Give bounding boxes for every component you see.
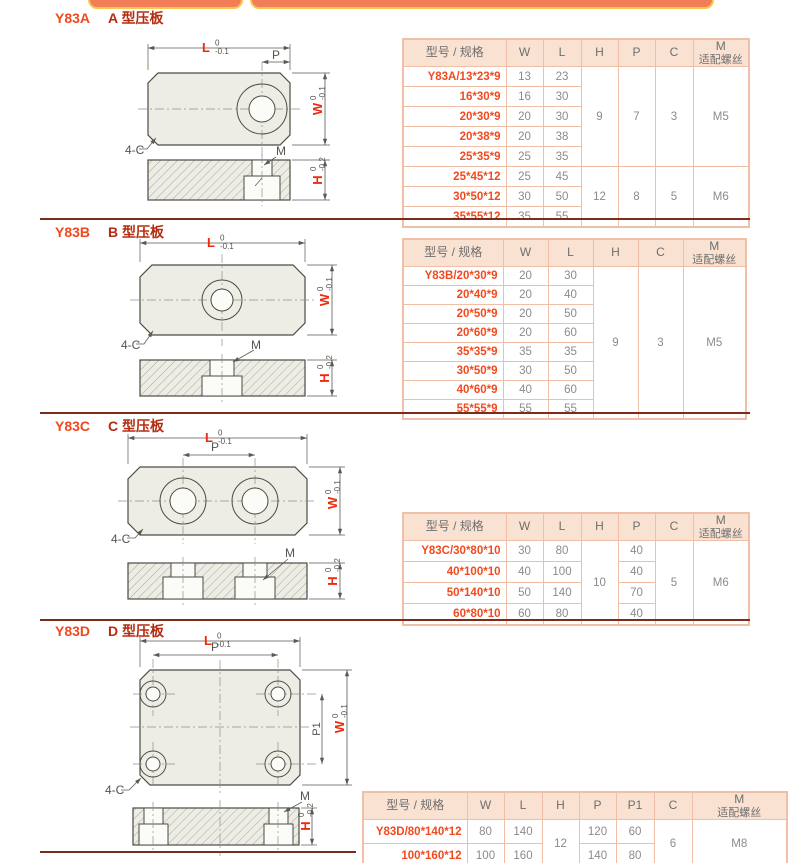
cell-M: M8 xyxy=(692,820,787,863)
cell-M: M6 xyxy=(693,541,749,626)
chamfer-label: 4-C xyxy=(111,532,131,546)
section-divider xyxy=(40,218,750,220)
tolerance-upper: 0 xyxy=(309,166,318,171)
tolerance-lower: -0.1 xyxy=(333,480,342,494)
col-header-P1: P1 xyxy=(616,792,654,820)
spec-table-y83a-grid: 型号 / 规格WLHPCM适配螺丝Y83A/13*23*91323973M516… xyxy=(402,38,750,228)
cell-model: 60*80*10 xyxy=(403,604,506,626)
dim-label-h: H xyxy=(298,821,313,830)
col-header-M: M适配螺丝 xyxy=(693,39,749,67)
cell-W: 30 xyxy=(506,541,543,562)
cell-L: 50 xyxy=(543,187,581,207)
cell-model: Y83D/80*140*12 xyxy=(363,820,467,844)
cell-model: 25*35*9 xyxy=(403,147,506,167)
tolerance-lower: -0.1 xyxy=(218,437,232,446)
top-tab-bar-right[interactable] xyxy=(250,0,714,9)
cell-P: 70 xyxy=(618,583,655,604)
cell-model: Y83B/20*30*9 xyxy=(403,267,503,286)
cell-L: 38 xyxy=(543,127,581,147)
drawing-y83b: L 0 -0.1 W 0 -0.1 4-C M H 0 -0.2 xyxy=(55,226,365,411)
col-header-P: P xyxy=(618,39,655,67)
tolerance-lower: -0.2 xyxy=(333,558,342,572)
cell-W: 20 xyxy=(503,267,548,286)
tolerance-upper: 0 xyxy=(324,489,333,494)
tolerance-lower: -0.1 xyxy=(217,640,231,649)
tolerance-lower: -0.2 xyxy=(306,803,315,817)
tolerance-lower: -0.1 xyxy=(318,86,327,100)
catalog-page: Y83AA 型压板 xyxy=(0,0,790,863)
cell-L: 140 xyxy=(504,820,542,844)
cell-L: 80 xyxy=(543,541,581,562)
dim-label-h: H xyxy=(317,373,332,382)
tolerance-lower: -0.1 xyxy=(215,47,229,56)
dim-label-h: H xyxy=(310,175,325,184)
cell-L: 60 xyxy=(548,324,593,343)
cell-W: 20 xyxy=(503,324,548,343)
cell-P: 7 xyxy=(618,67,655,167)
cell-W: 50 xyxy=(506,583,543,604)
cell-C: 3 xyxy=(638,267,683,420)
cell-W: 40 xyxy=(506,562,543,583)
top-view xyxy=(118,458,317,544)
col-header-W: W xyxy=(503,239,548,267)
dim-label-l: L xyxy=(202,40,210,55)
side-view xyxy=(140,350,337,402)
cell-W: 80 xyxy=(467,820,504,844)
cell-model: 20*40*9 xyxy=(403,286,503,305)
col-header-C: C xyxy=(655,39,693,67)
col-header-W: W xyxy=(506,513,543,541)
cell-H: 10 xyxy=(581,541,618,626)
cell-H: 9 xyxy=(593,267,638,420)
dim-label-p: P xyxy=(211,640,219,654)
cell-model: 16*30*9 xyxy=(403,87,506,107)
cell-model: 55*55*9 xyxy=(403,400,503,420)
dim-label-p: P xyxy=(211,440,219,454)
cell-W: 25 xyxy=(506,147,543,167)
side-section xyxy=(128,563,307,599)
cell-model: 35*35*9 xyxy=(403,343,503,362)
cell-model: 20*30*9 xyxy=(403,107,506,127)
cell-W: 16 xyxy=(506,87,543,107)
tolerance-upper: 0 xyxy=(316,286,325,291)
table-row: Y83A/13*23*91323973M5 xyxy=(403,67,749,87)
tolerance-lower: -0.2 xyxy=(318,157,327,171)
cell-model: Y83C/30*80*10 xyxy=(403,541,506,562)
dim-label-p1: P1 xyxy=(311,722,323,735)
section-title-y83a: Y83AA 型压板 xyxy=(55,8,164,28)
cell-L: 55 xyxy=(548,400,593,420)
cell-W: 20 xyxy=(503,286,548,305)
cell-L: 50 xyxy=(548,362,593,381)
through-hole xyxy=(249,96,275,122)
side-view xyxy=(128,557,345,605)
chamfer-label: 4-C xyxy=(125,143,145,157)
col-header-H: H xyxy=(581,39,618,67)
table-row: Y83B/20*30*9203093M5 xyxy=(403,267,746,286)
dim-label-m: M xyxy=(251,338,261,352)
spec-table-y83d: 型号 / 规格WLHPP1CM适配螺丝Y83D/80*140*128014012… xyxy=(362,791,788,863)
cell-L: 80 xyxy=(543,604,581,626)
cell-model: 100*160*12 xyxy=(363,844,467,863)
top-view xyxy=(130,659,317,795)
cell-W: 35 xyxy=(503,343,548,362)
cell-P: 120 xyxy=(579,820,616,844)
tolerance-upper: 0 xyxy=(316,364,325,369)
chamfer-label: 4-C xyxy=(121,338,141,352)
cell-P: 40 xyxy=(618,604,655,626)
cell-M: M5 xyxy=(693,67,749,167)
dim-label-m: M xyxy=(300,789,310,803)
col-header-L: L xyxy=(543,513,581,541)
section-type-label: A 型压板 xyxy=(108,10,163,26)
col-header-M: M适配螺丝 xyxy=(683,239,746,267)
col-header-W: W xyxy=(506,39,543,67)
cell-L: 160 xyxy=(504,844,542,863)
header-row: 型号 / 规格WLHPP1CM适配螺丝 xyxy=(363,792,787,820)
spec-table-y83b: 型号 / 规格WLHCM适配螺丝Y83B/20*30*9203093M520*4… xyxy=(402,238,747,420)
cell-L: 40 xyxy=(548,286,593,305)
top-view xyxy=(130,254,315,346)
col-header-M: M适配螺丝 xyxy=(692,792,787,820)
col-header-P: P xyxy=(618,513,655,541)
col-header-model: 型号 / 规格 xyxy=(403,239,503,267)
dim-label-w: W xyxy=(325,496,340,509)
tolerance-lower: -0.1 xyxy=(340,704,349,718)
cell-W: 30 xyxy=(503,362,548,381)
cell-L: 140 xyxy=(543,583,581,604)
through-hole xyxy=(242,488,268,514)
tolerance-lower: -0.1 xyxy=(325,277,334,291)
dim-label-w: W xyxy=(310,102,325,115)
cell-L: 30 xyxy=(543,87,581,107)
col-header-C: C xyxy=(654,792,692,820)
cell-model: 30*50*12 xyxy=(403,187,506,207)
drawing-y83d: L 0 -0.1 P P1 W 0 -0.1 4-C M H 0 -0.2 xyxy=(55,626,365,863)
cell-L: 50 xyxy=(548,305,593,324)
cell-L: 45 xyxy=(543,167,581,187)
cell-model: 30*50*9 xyxy=(403,362,503,381)
dim-label-w: W xyxy=(317,293,332,306)
col-header-model: 型号 / 规格 xyxy=(363,792,467,820)
cell-L: 35 xyxy=(543,147,581,167)
header-row: 型号 / 规格WLHCM适配螺丝 xyxy=(403,239,746,267)
tolerance-lower: -0.1 xyxy=(220,242,234,251)
col-header-M: M适配螺丝 xyxy=(693,513,749,541)
cell-C: 5 xyxy=(655,541,693,626)
cell-H: 9 xyxy=(581,67,618,167)
cell-H: 12 xyxy=(542,820,579,863)
cell-L: 100 xyxy=(543,562,581,583)
side-view xyxy=(148,154,330,206)
tolerance-upper: 0 xyxy=(297,812,306,817)
col-header-W: W xyxy=(467,792,504,820)
dim-label-h: H xyxy=(325,576,340,585)
table-row: Y83C/30*80*10308010405M6 xyxy=(403,541,749,562)
cell-P1: 60 xyxy=(616,820,654,844)
chamfer-label: 4-C xyxy=(105,783,125,797)
spec-table-y83b-grid: 型号 / 规格WLHCM适配螺丝Y83B/20*30*9203093M520*4… xyxy=(402,238,747,420)
dim-label-p: P xyxy=(272,48,280,62)
section-divider xyxy=(40,412,750,414)
cell-model: 20*38*9 xyxy=(403,127,506,147)
spec-table-y83c-grid: 型号 / 规格WLHPCM适配螺丝Y83C/30*80*10308010405M… xyxy=(402,512,750,626)
cell-W: 100 xyxy=(467,844,504,863)
cell-model: Y83A/13*23*9 xyxy=(403,67,506,87)
cell-W: 55 xyxy=(503,400,548,420)
tolerance-upper: 0 xyxy=(331,713,340,718)
table-row: Y83D/80*140*128014012120606M8 xyxy=(363,820,787,844)
side-view xyxy=(133,800,317,856)
cell-W: 20 xyxy=(503,305,548,324)
header-row: 型号 / 规格WLHPCM适配螺丝 xyxy=(403,39,749,67)
cell-L: 35 xyxy=(548,343,593,362)
col-header-L: L xyxy=(548,239,593,267)
cell-W: 20 xyxy=(506,107,543,127)
cell-model: 25*45*12 xyxy=(403,167,506,187)
dim-label-m: M xyxy=(285,546,295,560)
col-header-C: C xyxy=(638,239,683,267)
cell-C: 3 xyxy=(655,67,693,167)
tolerance-upper: 0 xyxy=(309,95,318,100)
cell-P: 40 xyxy=(618,541,655,562)
col-header-P: P xyxy=(579,792,616,820)
cell-model: 20*60*9 xyxy=(403,324,503,343)
tolerance-upper: 0 xyxy=(324,567,333,572)
through-hole xyxy=(211,289,233,311)
col-header-model: 型号 / 规格 xyxy=(403,39,506,67)
drawing-y83c: L 0 -0.1 P W 0 -0.1 4-C M H 0 -0.2 xyxy=(55,418,365,616)
cell-model: 40*60*9 xyxy=(403,381,503,400)
col-header-L: L xyxy=(543,39,581,67)
cell-L: 23 xyxy=(543,67,581,87)
spec-table-y83c: 型号 / 规格WLHPCM适配螺丝Y83C/30*80*10308010405M… xyxy=(402,512,750,626)
spec-table-y83a: 型号 / 规格WLHPCM适配螺丝Y83A/13*23*91323973M516… xyxy=(402,38,750,228)
cell-L: 30 xyxy=(543,107,581,127)
col-header-H: H xyxy=(581,513,618,541)
col-header-model: 型号 / 规格 xyxy=(403,513,506,541)
section-divider xyxy=(40,851,356,853)
cell-P: 40 xyxy=(618,562,655,583)
dim-label-l: L xyxy=(207,235,215,250)
cell-W: 60 xyxy=(506,604,543,626)
through-hole xyxy=(170,488,196,514)
cell-W: 20 xyxy=(506,127,543,147)
cell-model: 50*140*10 xyxy=(403,583,506,604)
cell-W: 40 xyxy=(503,381,548,400)
tolerance-lower: -0.2 xyxy=(325,355,334,369)
cell-P: 140 xyxy=(579,844,616,863)
drawing-y83a: L 0 -0.1 P W 0 -0.1 4-C M H 0 -0.2 xyxy=(55,28,365,218)
table-row: 25*45*1225451285M6 xyxy=(403,167,749,187)
top-view xyxy=(138,62,300,156)
spec-table-y83d-grid: 型号 / 规格WLHPP1CM适配螺丝Y83D/80*140*128014012… xyxy=(362,791,788,863)
col-header-H: H xyxy=(542,792,579,820)
cell-L: 30 xyxy=(548,267,593,286)
cell-C: 6 xyxy=(654,820,692,863)
cell-L: 60 xyxy=(548,381,593,400)
col-header-H: H xyxy=(593,239,638,267)
cell-M: M5 xyxy=(683,267,746,420)
cell-W: 25 xyxy=(506,167,543,187)
section-code: Y83A xyxy=(55,10,90,26)
cell-model: 40*100*10 xyxy=(403,562,506,583)
dim-label-w: W xyxy=(332,720,347,733)
dim-label-m: M xyxy=(276,144,286,158)
cell-P1: 80 xyxy=(616,844,654,863)
cell-model: 20*50*9 xyxy=(403,305,503,324)
col-header-L: L xyxy=(504,792,542,820)
header-row: 型号 / 规格WLHPCM适配螺丝 xyxy=(403,513,749,541)
col-header-C: C xyxy=(655,513,693,541)
cell-W: 30 xyxy=(506,187,543,207)
cell-W: 13 xyxy=(506,67,543,87)
